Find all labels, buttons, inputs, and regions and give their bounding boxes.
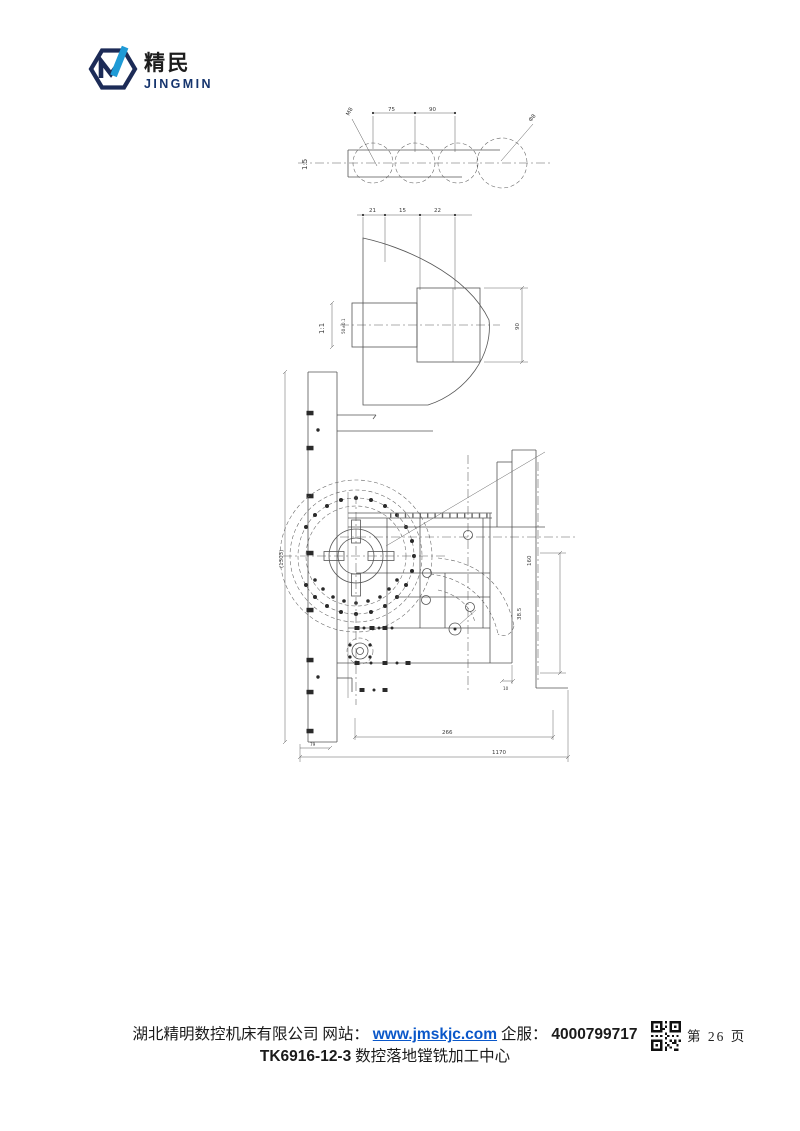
dim-sec-2: 15: [399, 208, 406, 214]
dim-total-width: 1170: [492, 750, 506, 756]
lower-pivot: [347, 638, 373, 664]
dim-right-mid: 38.5: [517, 607, 523, 620]
dim-inner-width: 266: [442, 730, 453, 736]
dim-sec-3: 22: [434, 208, 441, 214]
footer-company: 湖北精明数控机床有限公司: [132, 1026, 318, 1043]
dim-column-height: (1303): [279, 550, 285, 568]
dim-slot-label: 50±0.1: [341, 318, 346, 334]
view-main: (1303): [279, 370, 578, 762]
logo-hexagon-icon: [91, 46, 135, 88]
dim-angle: 79: [310, 742, 316, 747]
dim-sec-height: 90: [515, 323, 521, 330]
footer-model-code: TK6916-12-3: [260, 1048, 351, 1065]
hub: [324, 520, 394, 596]
dim-sec-1: 21: [369, 208, 376, 214]
logo-brand-cn: 精民: [144, 51, 191, 75]
dim-top-b: 90: [429, 107, 436, 113]
technical-drawing: 75 90 M8 Φ8 1:5 21 15 22 90: [275, 90, 580, 775]
leader-thread-label: M8: [345, 106, 354, 117]
company-logo: 精民 JINGMIN: [86, 42, 276, 98]
housing-body: [337, 455, 578, 692]
footer-website-link[interactable]: www.jmskjc.com: [373, 1026, 497, 1043]
footer-line2: TK6916-12-3 数控落地镗铣加工中心: [120, 1044, 650, 1066]
leader-dia-label: Φ8: [528, 113, 538, 123]
right-column: 10: [497, 450, 568, 691]
logo-brand-en: JINGMIN: [144, 77, 213, 91]
view-top: 75 90 M8 Φ8 1:5: [298, 106, 550, 188]
footer-line1: 湖北精明数控机床有限公司 网站： www.jmskjc.com 企服： 4000…: [120, 1022, 650, 1044]
scale-section-label: 1:1: [318, 323, 326, 334]
footer-service-label: 企服：: [501, 1026, 548, 1043]
footer-site-label: 网站：: [322, 1026, 369, 1043]
footer-model-name: 数控落地镗铣加工中心: [355, 1048, 510, 1065]
qr-code-icon: [651, 1021, 681, 1051]
dim-right-top: 160: [527, 555, 533, 566]
footer-service-phone: 4000799717: [551, 1026, 637, 1043]
view-section: 21 15 22 90 50±0.1 1:1: [318, 208, 528, 405]
dim-top-a: 75: [388, 107, 395, 113]
dim-step: 10: [503, 686, 509, 691]
base-bolts: [355, 626, 411, 692]
scale-top-label: 1:5: [301, 159, 309, 170]
page-number: 第 26 页: [687, 1025, 746, 1045]
